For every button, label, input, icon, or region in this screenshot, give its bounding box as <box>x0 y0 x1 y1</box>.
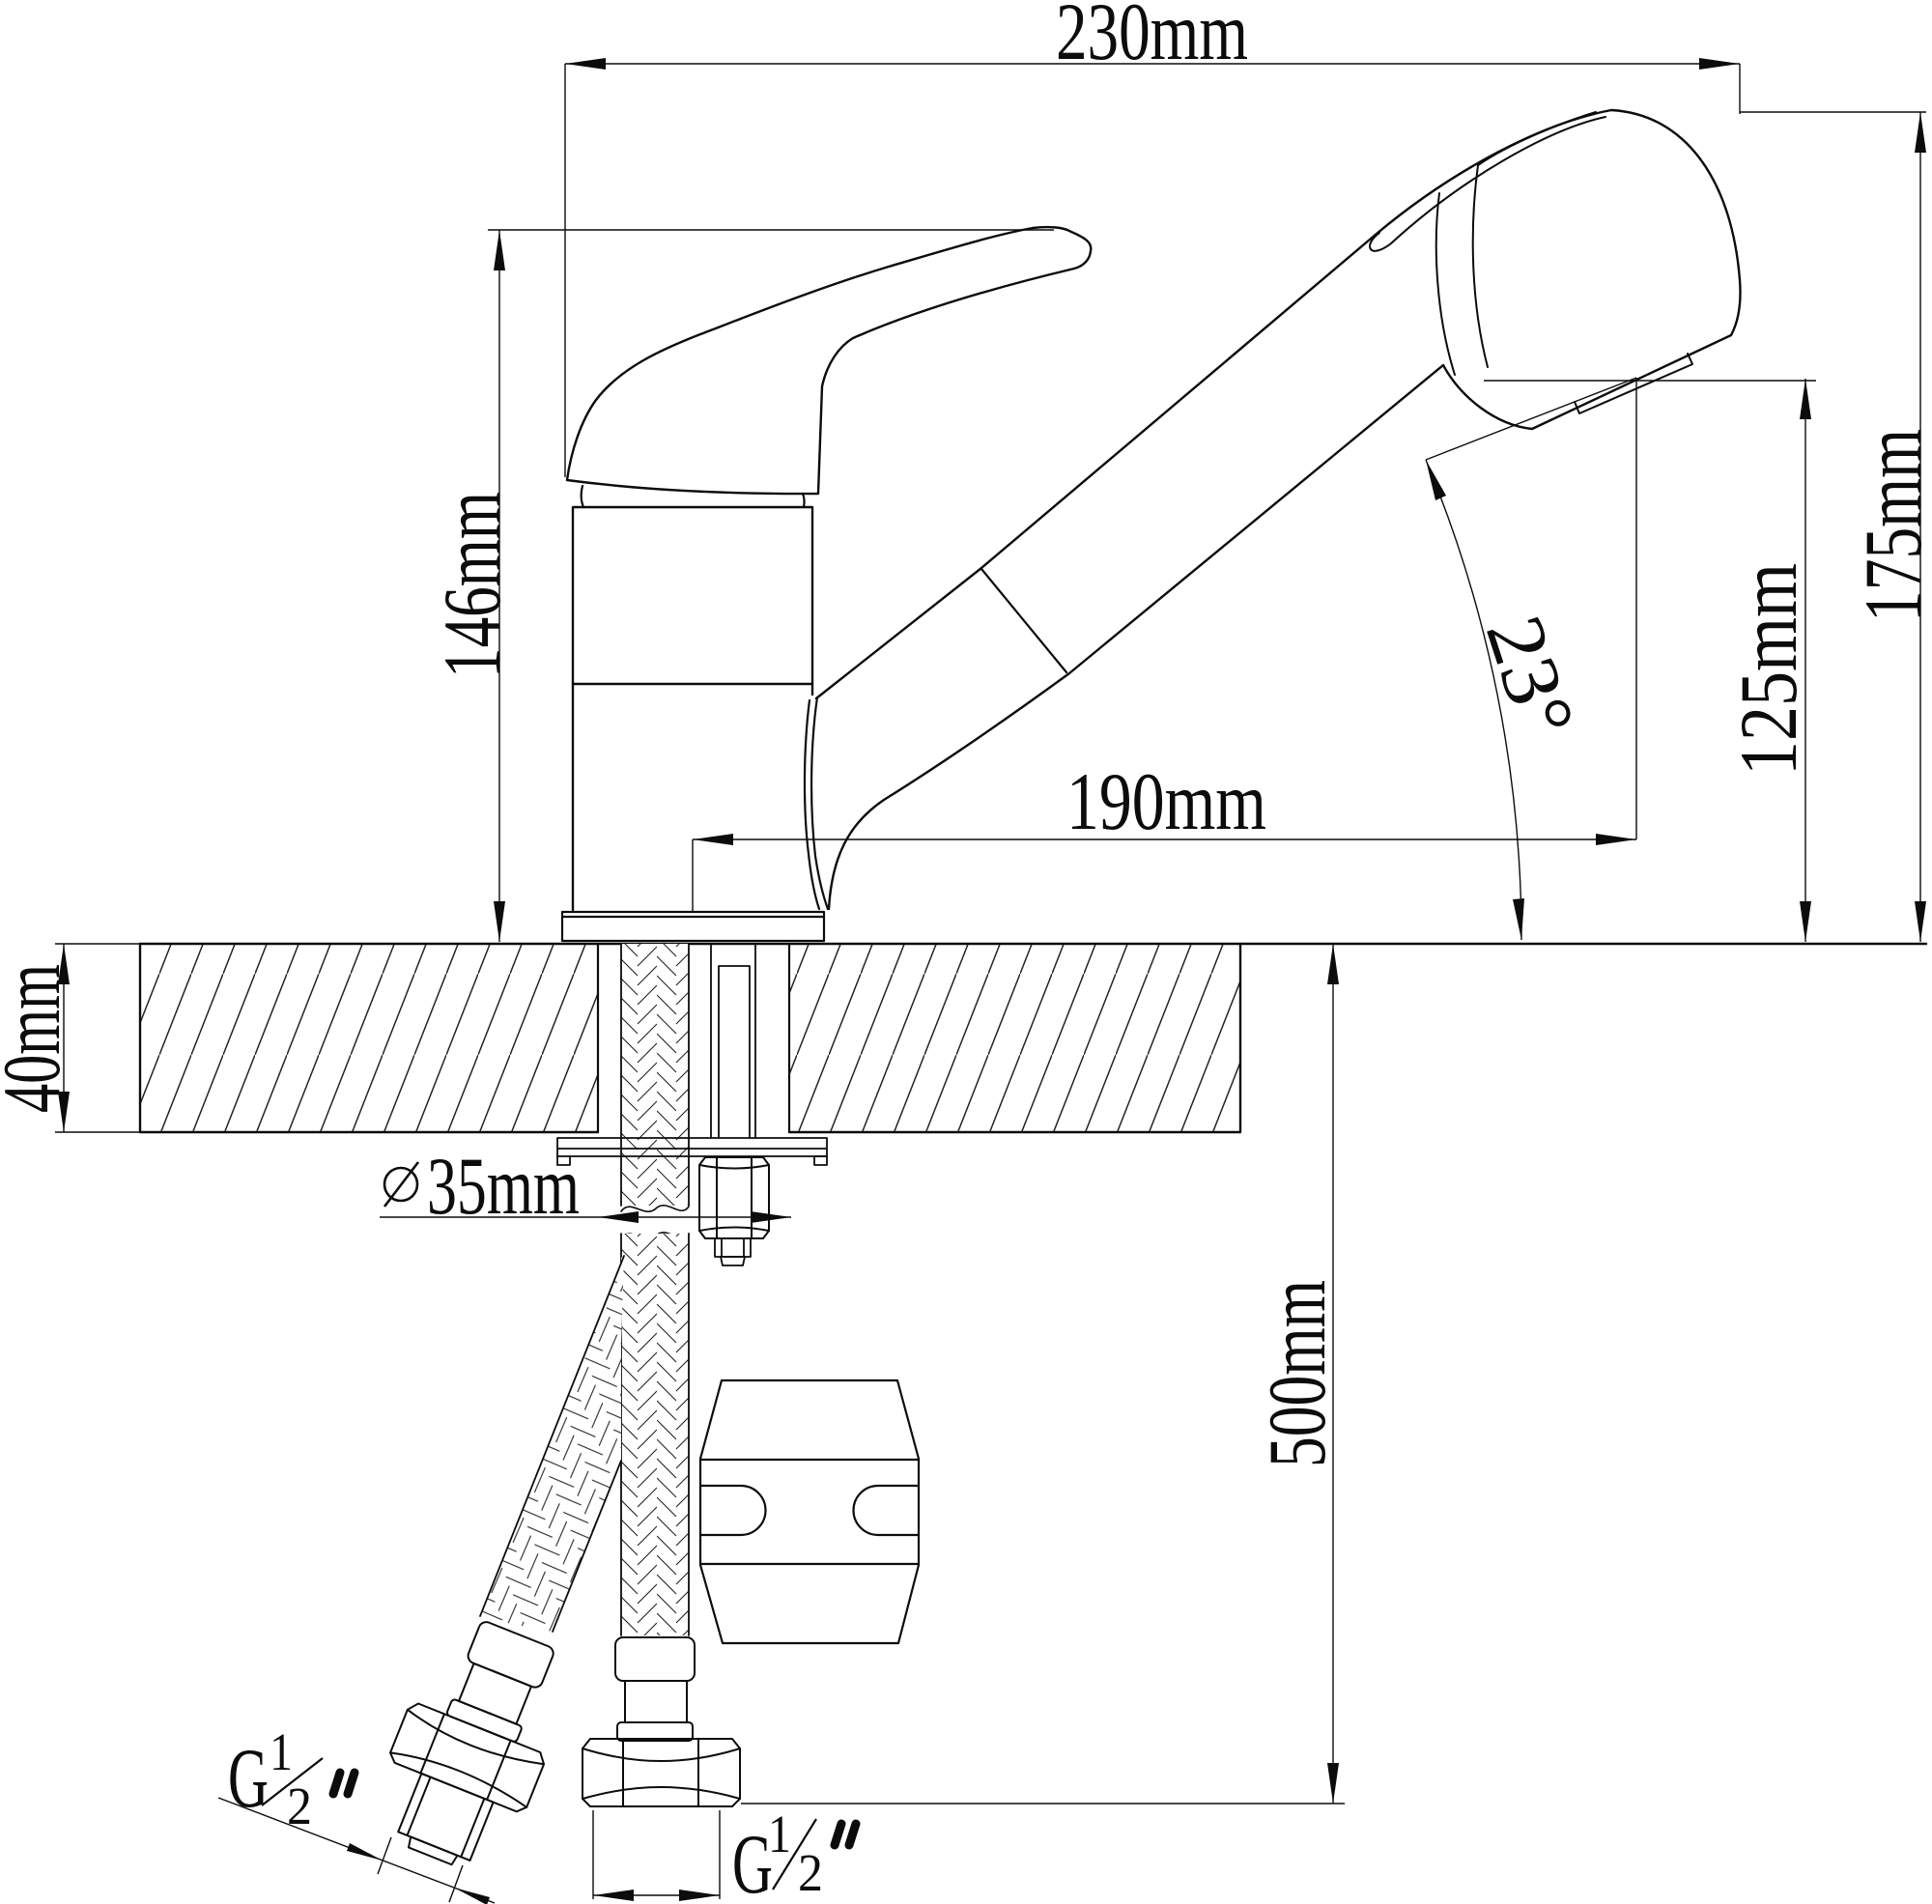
svg-text:2: 2 <box>798 1843 823 1902</box>
svg-text:G: G <box>228 1732 269 1826</box>
svg-text:2: 2 <box>287 1776 312 1835</box>
svg-text:175mm: 175mm <box>1848 429 1932 622</box>
svg-text:125mm: 125mm <box>1723 563 1814 776</box>
svg-text:230mm: 230mm <box>1056 0 1248 77</box>
svg-text:146mm: 146mm <box>427 492 518 678</box>
svg-text:35mm: 35mm <box>427 1141 580 1232</box>
svg-text:G: G <box>732 1818 773 1904</box>
svg-text:1: 1 <box>768 1805 791 1863</box>
svg-text:190mm: 190mm <box>1066 756 1266 847</box>
svg-text:500mm: 500mm <box>1252 1280 1343 1467</box>
svg-text:1: 1 <box>270 1722 293 1781</box>
svg-text:40mm: 40mm <box>0 964 77 1113</box>
